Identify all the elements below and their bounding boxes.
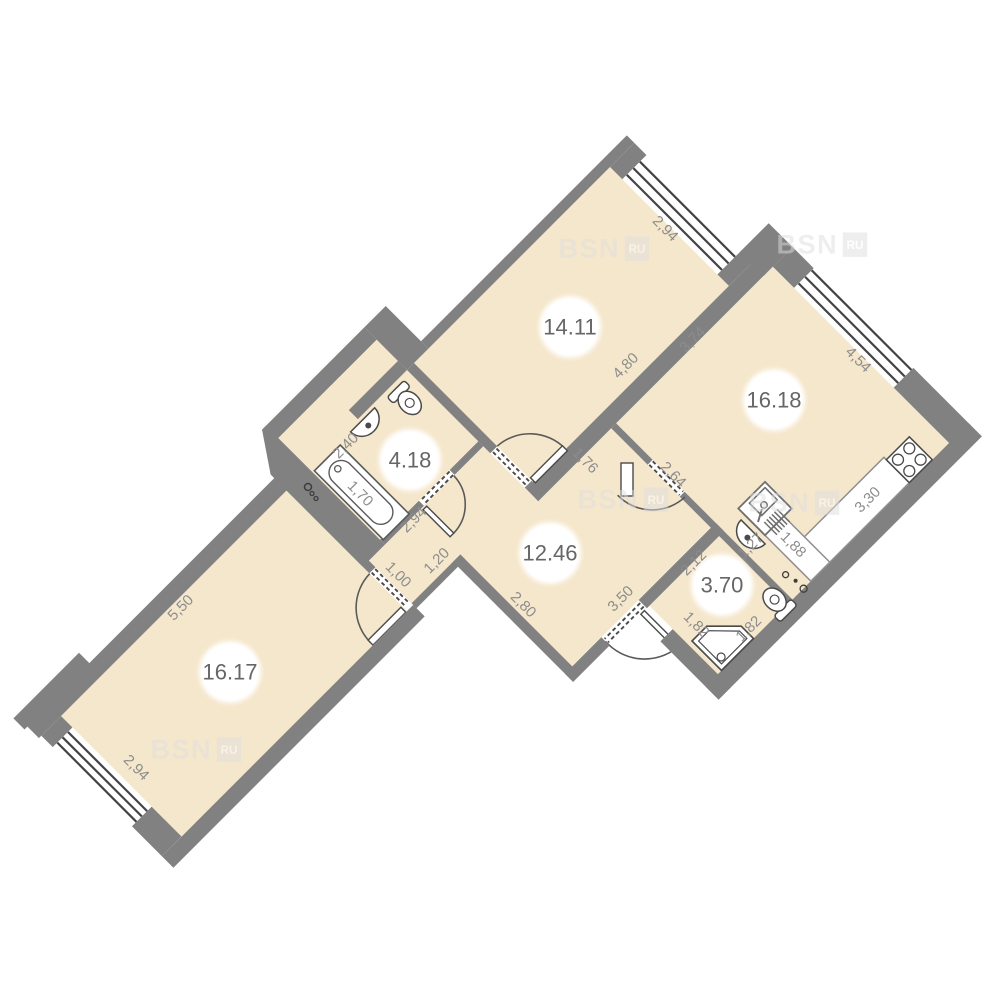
- svg-text:BSN: BSN: [749, 487, 810, 518]
- svg-text:RU: RU: [221, 745, 238, 757]
- svg-text:RU: RU: [648, 495, 665, 507]
- svg-text:4.18: 4.18: [389, 448, 432, 473]
- svg-text:14.11: 14.11: [543, 315, 596, 340]
- svg-text:BSN: BSN: [578, 484, 639, 515]
- svg-text:16.18: 16.18: [746, 388, 801, 413]
- svg-text:12.46: 12.46: [522, 541, 577, 566]
- svg-text:RU: RU: [629, 244, 646, 256]
- svg-text:3.70: 3.70: [701, 573, 744, 598]
- svg-text:BSN: BSN: [559, 233, 620, 264]
- svg-text:BSN: BSN: [151, 734, 212, 765]
- svg-text:RU: RU: [819, 498, 836, 510]
- svg-text:BSN: BSN: [777, 229, 838, 260]
- svg-text:RU: RU: [847, 240, 864, 252]
- svg-text:16.17: 16.17: [202, 660, 257, 685]
